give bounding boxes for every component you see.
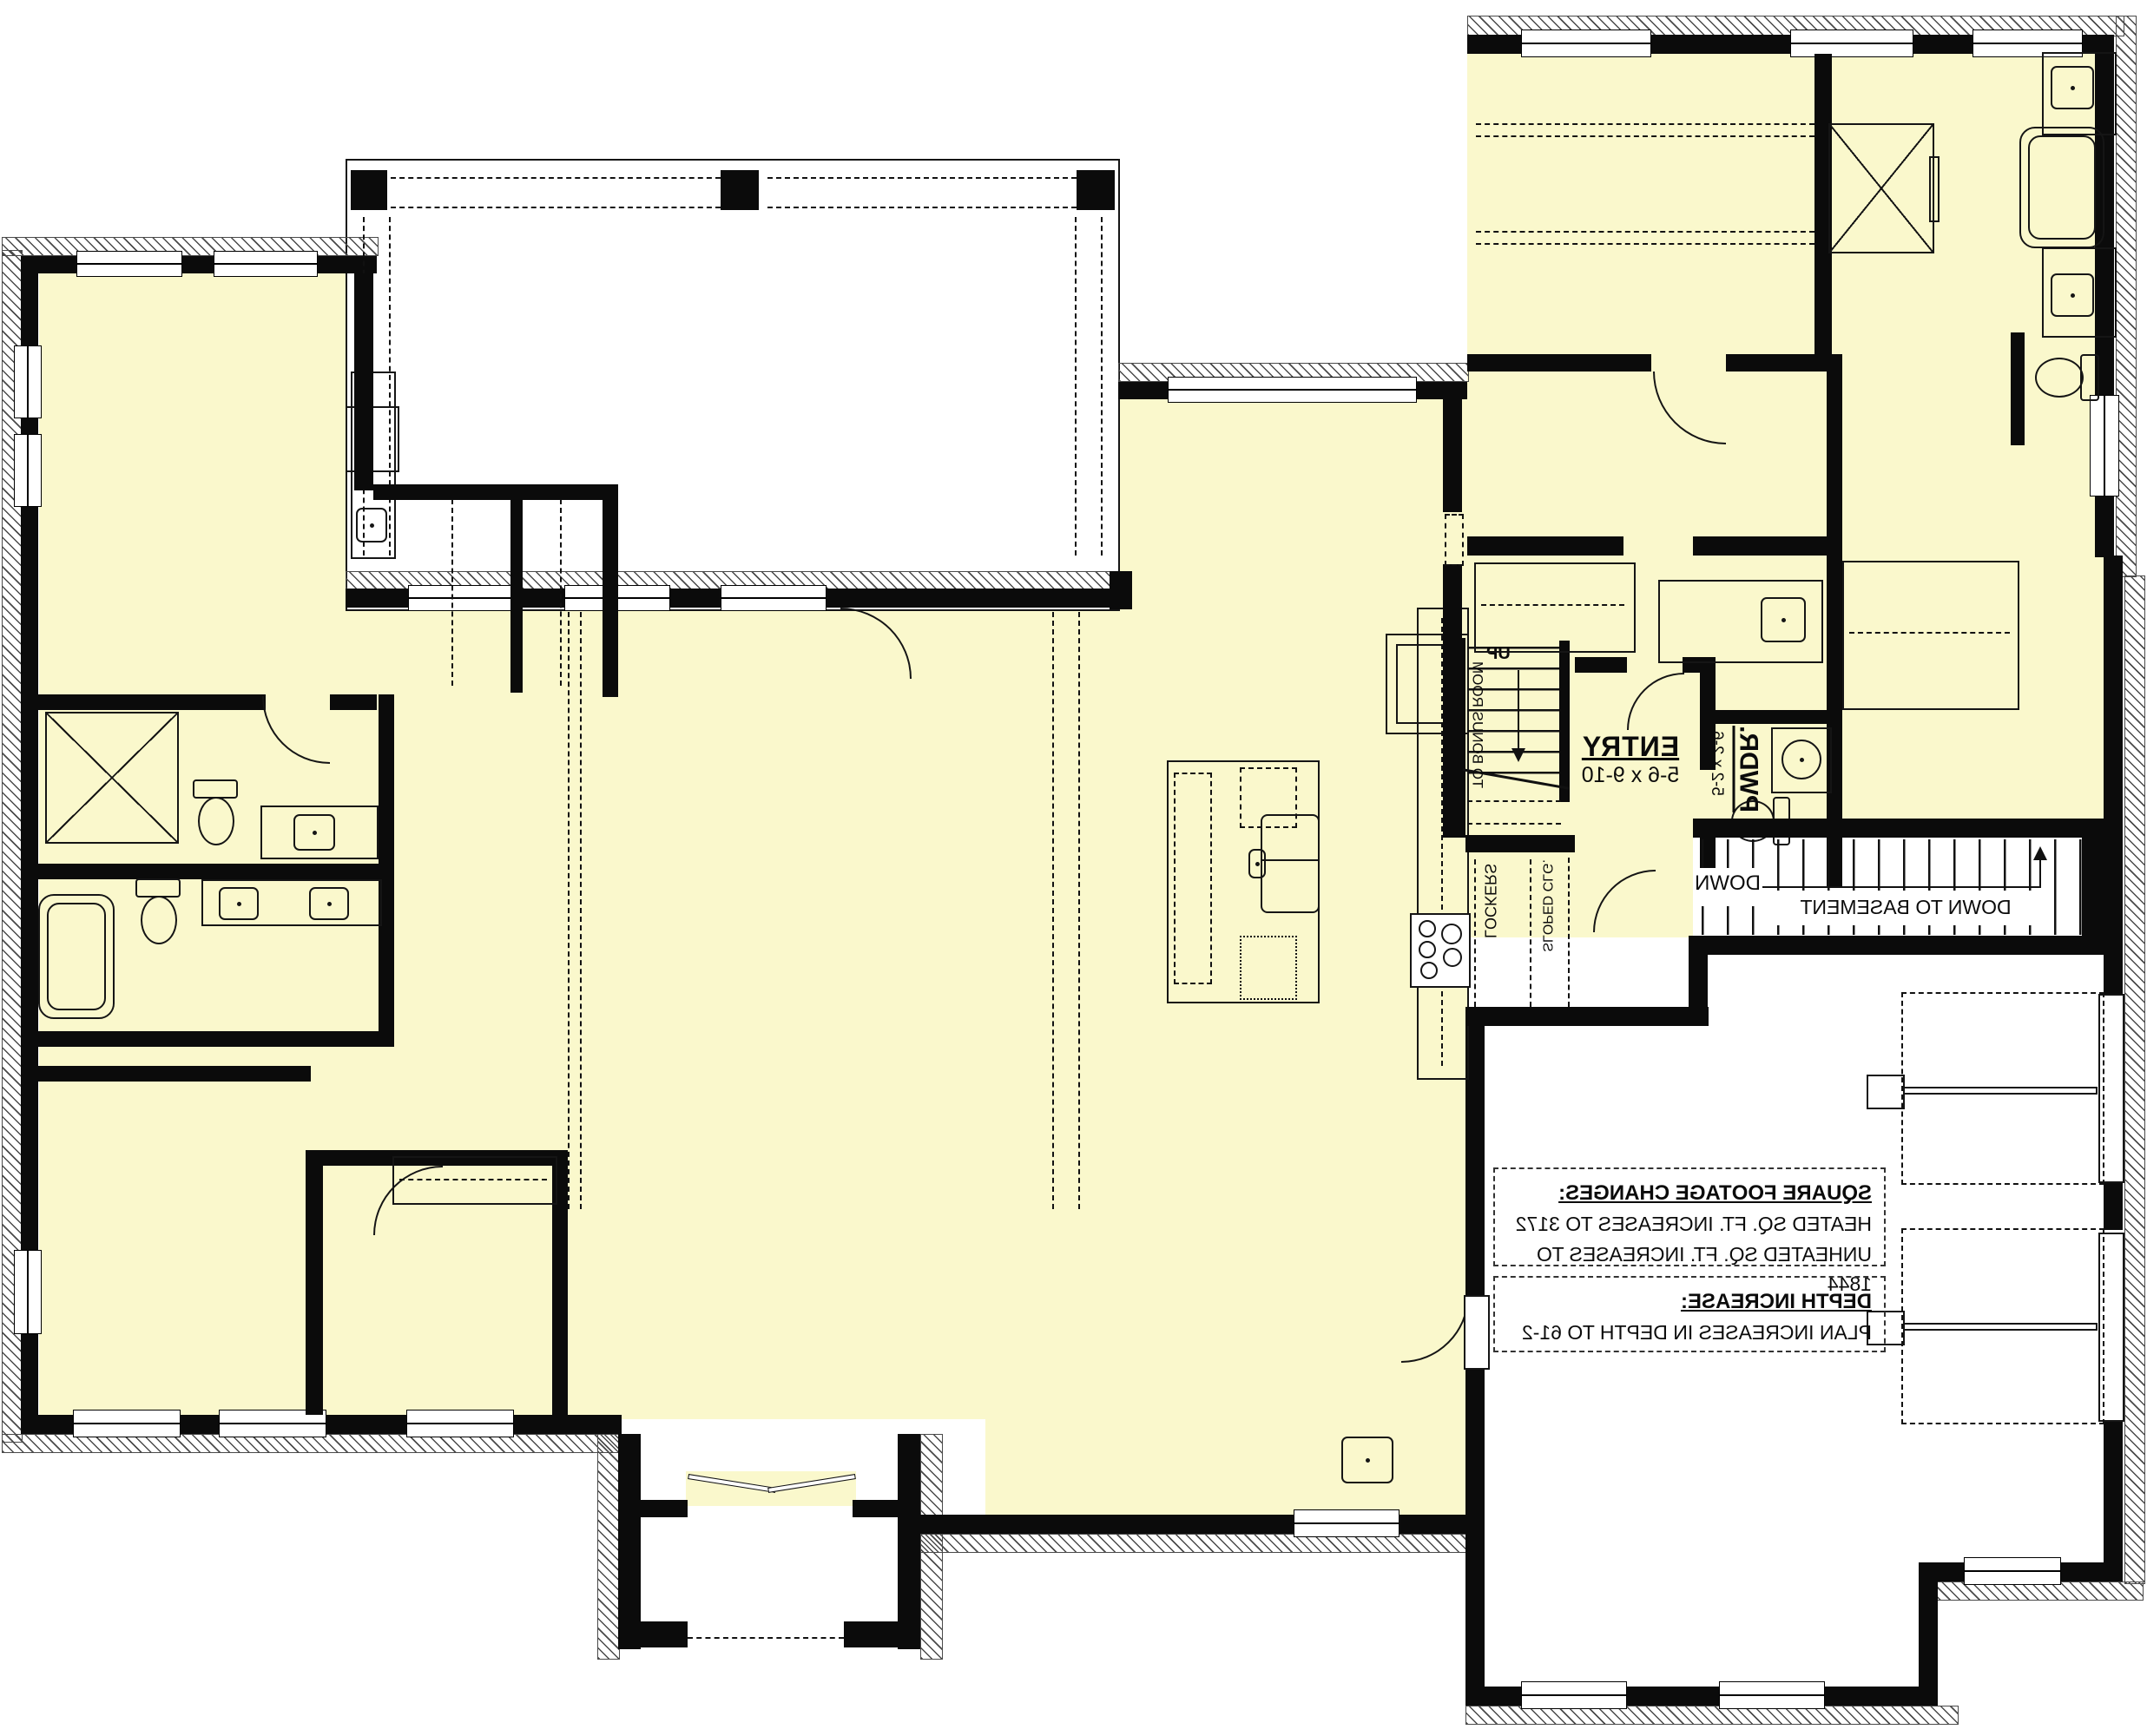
porch-beam-dashed — [767, 177, 1077, 179]
window — [1521, 1681, 1627, 1709]
garage-opener-rail-1 — [1903, 1087, 2098, 1095]
wall-closet-top — [373, 484, 609, 500]
porch-roof-dashed — [688, 1637, 844, 1639]
wall-bedroom1-bottom-a — [21, 694, 266, 710]
window — [2090, 395, 2119, 496]
wall-stair-bottom — [1465, 835, 1575, 852]
ceiling-beam-dashed — [1052, 612, 1054, 1209]
ceiling-beam-dashed — [568, 612, 570, 1209]
porch-beam-dashed — [1075, 217, 1077, 556]
powder-dims: 5-2 x 2-6 — [1707, 731, 1726, 796]
wall-flex-bedroom-divider — [306, 1150, 323, 1415]
wall-closet-right — [603, 484, 618, 697]
porch-post — [1077, 170, 1115, 210]
wall-front-porch-return-left — [618, 1621, 688, 1647]
exterior-wall-garage-right-a — [2104, 556, 2123, 994]
porch-beam-dashed — [1101, 217, 1103, 556]
sink — [309, 887, 349, 920]
range-burner — [1419, 920, 1436, 937]
window — [1964, 1557, 2061, 1585]
garage-entry-door-opening — [1464, 1295, 1490, 1370]
stair-arrow-head — [2033, 846, 2047, 860]
wall-basement-stair-bottom — [1689, 936, 2123, 955]
master-shower — [1828, 123, 1934, 253]
cased-opening-dashed — [1445, 514, 1464, 566]
lockers-text: LOCKERS — [1481, 864, 1499, 938]
sink — [293, 814, 335, 851]
island-sink-divider — [1261, 859, 1318, 861]
stair-arrow-line — [1518, 670, 1519, 750]
wall-closet-divider — [510, 484, 523, 693]
hatch-porch-left — [597, 1434, 620, 1660]
floor-plan: UP TO BONUS ROOM LOCKERS SLOPED CLG. ENT… — [0, 0, 2147, 1736]
wall-suite-hall-b — [1693, 536, 1832, 556]
stair-leader-line — [1762, 886, 2040, 888]
room-fill-great-room — [373, 603, 1120, 1419]
sink — [2051, 66, 2094, 109]
wall-kitchen-entry-a — [1443, 382, 1462, 512]
powder-sink — [1781, 740, 1821, 779]
island-faucet — [1248, 849, 1266, 878]
range-burner — [1419, 941, 1436, 958]
entry-dims: 5-6 x 9-10 — [1561, 763, 1700, 788]
stair-dashed-tread — [1467, 823, 1561, 825]
linen-closet — [1842, 561, 2019, 710]
depth-heading: DEPTH INCREASE: — [1681, 1290, 1872, 1313]
window — [73, 1410, 181, 1437]
wall-wc — [2011, 332, 2025, 445]
closet-rod-dashed — [560, 499, 562, 686]
to-bonus-room-text: TO BONUS ROOM — [1469, 661, 1486, 788]
wall-front-door-left — [618, 1500, 688, 1517]
porch-beam-dashed — [391, 177, 721, 179]
porch-beam-dashed — [391, 207, 721, 208]
window — [214, 251, 318, 277]
wall-basement-stair-right — [2082, 819, 2104, 955]
utility-sink — [1341, 1437, 1393, 1483]
wall-bath-divider — [21, 864, 394, 879]
hatch-porch-right — [920, 1434, 943, 1660]
room-fill-master-suite — [1467, 35, 2114, 556]
wall-master-bottom-a — [1467, 354, 1651, 372]
stair-destination-label: TO BONUS ROOM — [1469, 661, 1486, 800]
garage-opener-rail-2 — [1903, 1323, 2098, 1331]
stair-dashed-tread — [1467, 800, 1561, 802]
wic-shelf — [1474, 562, 1636, 653]
exterior-wall-garage-right-b — [2104, 1182, 2123, 1230]
sink — [2051, 273, 2094, 317]
island-stools-dashed — [1174, 773, 1212, 984]
entry-name: ENTRY — [1561, 731, 1700, 763]
basement-down-label: DOWN — [1695, 871, 1761, 896]
wall-entry-top — [1575, 657, 1627, 673]
sloped-clg-dashed — [1568, 858, 1570, 1007]
stair-arrow-line — [2039, 858, 2041, 888]
wall-powder-right — [1827, 354, 1842, 888]
range-burner — [1443, 948, 1462, 967]
hatch-garage-right — [2124, 575, 2145, 1584]
master-ceiling-dashed — [1476, 243, 1814, 245]
wall-bath2-bottom — [21, 1031, 394, 1047]
ceiling-beam-dashed — [1078, 612, 1080, 1209]
wall-bath-right — [379, 694, 394, 1042]
master-ceiling-dashed — [1476, 123, 1814, 125]
porch-post — [721, 170, 759, 210]
linen-rod-dashed — [1849, 632, 2010, 634]
master-ceiling-dashed — [1476, 231, 1814, 233]
sink — [219, 887, 259, 920]
wall-front-door-right — [853, 1500, 920, 1517]
basement-note-label: DOWN TO BASEMENT — [1780, 896, 2032, 918]
wall-front-porch-left — [618, 1434, 641, 1649]
ceiling-beam-dashed — [580, 612, 582, 1209]
range-burner — [1441, 924, 1462, 944]
wall-front-porch-return-right — [844, 1621, 920, 1647]
window — [1521, 30, 1651, 57]
room-fill-bottom-strip — [985, 1419, 1120, 1515]
island-sink — [1261, 814, 1320, 913]
wall-bedroom1-right — [354, 273, 373, 490]
depth-line-1: PLAN INCREASES IN DEPTH TO 61-2 — [1522, 1321, 1872, 1344]
note-box-depth: DEPTH INCREASE: PLAN INCREASES IN DEPTH … — [1493, 1276, 1886, 1352]
garage-opener-1 — [1867, 1075, 1905, 1109]
window — [1790, 30, 1913, 57]
wall-suite-hall-a — [1467, 536, 1623, 556]
lockers-label: LOCKERS — [1481, 864, 1499, 1004]
window — [14, 1250, 42, 1334]
exterior-wall-top-left-wing — [21, 256, 377, 273]
outdoor-sink — [356, 508, 387, 542]
sqft-line-1: HEATED SQ. FT. INCREASES TO 3172 — [1516, 1213, 1872, 1235]
lockers-dashed — [1530, 859, 1531, 1007]
porch-post — [351, 170, 387, 210]
sqft-heading: SQUARE FOOTAGE CHANGES: — [1558, 1181, 1872, 1205]
window — [408, 585, 514, 611]
shower-door — [1929, 156, 1940, 222]
shower — [45, 712, 179, 844]
hatch-top-left-wing — [2, 237, 379, 256]
wall-bottom-center-jog — [1465, 1515, 1485, 1706]
down-text: DOWN — [1695, 871, 1761, 895]
sloped-clg-label: SLOPED CLG. — [1538, 859, 1554, 1007]
note-depth-content: DEPTH INCREASE: PLAN INCREASES IN DEPTH … — [1507, 1286, 1872, 1348]
wall-stair-left — [1443, 638, 1465, 838]
lockers-dashed — [1474, 859, 1476, 1007]
wall-bedroom1-bottom-b — [330, 694, 377, 710]
window — [1294, 1509, 1400, 1537]
wall-nook-bottom — [1465, 1007, 1709, 1026]
stair-arrow-head — [1511, 748, 1525, 762]
window — [76, 251, 182, 277]
wall-master-bottom-b — [1726, 354, 1830, 372]
wall-kitchen-entry-b — [1443, 564, 1462, 642]
window — [1168, 377, 1417, 403]
exterior-wall-garage-step — [1919, 1562, 1938, 1706]
down-to-basement-text: DOWN TO BASEMENT — [1800, 896, 2011, 918]
bathtub — [38, 894, 115, 1019]
window — [14, 345, 42, 418]
powder-name: PWDR. — [1733, 726, 1763, 812]
wall-basement-stair-top — [1693, 819, 2092, 838]
laundry-sink — [1761, 597, 1806, 642]
wall-flex-room-top — [21, 1066, 311, 1082]
closet-rod-dashed — [451, 499, 453, 686]
entry-label: ENTRY 5-6 x 9-10 — [1561, 731, 1700, 788]
covered-porch — [346, 159, 1120, 611]
window — [721, 585, 827, 611]
wall-front-porch-right — [898, 1434, 920, 1649]
exterior-wall-garage-right-c — [2104, 1422, 2123, 1565]
window — [1719, 1681, 1825, 1709]
note-box-sqft: SQUARE FOOTAGE CHANGES: HEATED SQ. FT. I… — [1493, 1167, 1886, 1266]
master-ceiling-dashed — [1476, 135, 1814, 137]
porch-beam-dashed — [767, 207, 1077, 208]
window — [406, 1410, 514, 1437]
window — [14, 434, 42, 507]
master-tub — [2019, 127, 2104, 248]
dishwasher-dotted — [1240, 936, 1297, 1000]
range-burner — [1420, 962, 1438, 979]
wall-powder-top — [1716, 710, 1830, 724]
sloped-clg-text: SLOPED CLG. — [1538, 859, 1554, 952]
wic-rod-dashed — [1481, 604, 1624, 606]
